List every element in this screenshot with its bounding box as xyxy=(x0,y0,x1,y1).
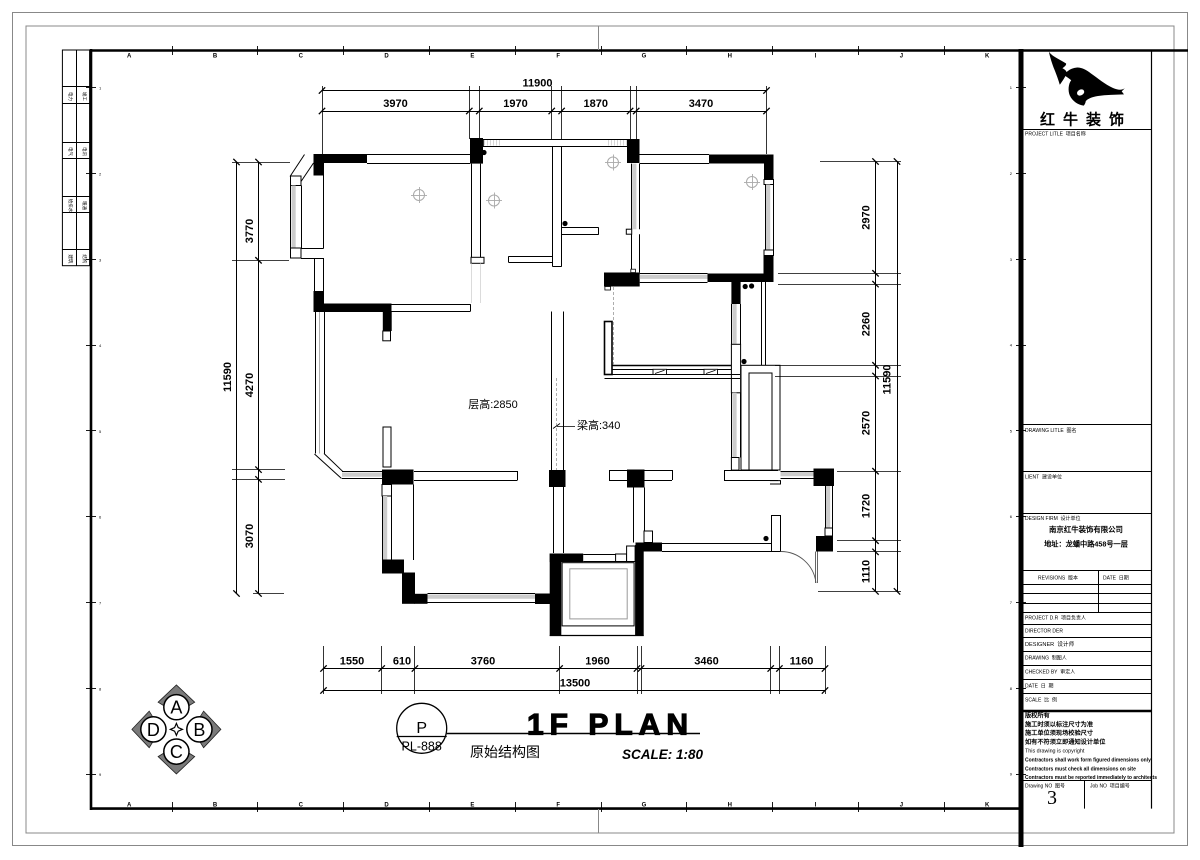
svg-text:B: B xyxy=(193,720,205,740)
svg-text:F: F xyxy=(556,803,560,809)
svg-text:DATE 日期: DATE 日期 xyxy=(1103,576,1129,582)
svg-text:G: G xyxy=(642,54,647,60)
svg-text:电力: 电力 xyxy=(67,92,74,101)
svg-text:13500: 13500 xyxy=(560,678,591,690)
svg-text:D: D xyxy=(147,720,160,740)
svg-text:版权所有: 版权所有 xyxy=(1024,712,1050,720)
svg-text:3770: 3770 xyxy=(244,219,256,243)
svg-text:F: F xyxy=(556,54,560,60)
svg-text:建筑: 建筑 xyxy=(67,254,74,263)
svg-text:DRAWING LITLE 图名: DRAWING LITLE 图名 xyxy=(1025,427,1077,434)
svg-text:This drawing is copyright: This drawing is copyright xyxy=(1025,749,1085,755)
svg-text:E: E xyxy=(470,803,474,809)
svg-text:1110: 1110 xyxy=(861,560,873,583)
svg-text:3460: 3460 xyxy=(694,656,718,668)
svg-text:C: C xyxy=(299,54,304,60)
svg-text:1160: 1160 xyxy=(790,656,814,668)
svg-text:DESIGNER 设计师: DESIGNER 设计师 xyxy=(1025,640,1075,648)
svg-text:CHECKED BY 审定人: CHECKED BY 审定人 xyxy=(1025,669,1075,676)
svg-text:11900: 11900 xyxy=(523,78,553,90)
svg-text:H: H xyxy=(728,54,732,60)
svg-text:11590: 11590 xyxy=(222,362,234,392)
svg-text:A: A xyxy=(170,698,182,718)
svg-text:梁高:340: 梁高:340 xyxy=(577,418,620,432)
svg-text:如有不符须立即通知设计单位: 如有不符须立即通知设计单位 xyxy=(1025,738,1106,746)
svg-text:B: B xyxy=(213,54,218,60)
svg-text:E: E xyxy=(470,54,474,60)
svg-text:K: K xyxy=(985,54,990,60)
svg-text:3070: 3070 xyxy=(244,524,256,548)
svg-text:C: C xyxy=(170,742,183,762)
svg-text:南京红牛装饰有限公司: 南京红牛装饰有限公司 xyxy=(1049,525,1123,534)
svg-text:11590: 11590 xyxy=(882,365,894,395)
svg-text:DRAWING 制图人: DRAWING 制图人 xyxy=(1025,655,1067,662)
svg-text:A: A xyxy=(127,54,132,60)
svg-text:DESIGN FIRM 设计单位: DESIGN FIRM 设计单位 xyxy=(1025,515,1081,522)
svg-text:1970: 1970 xyxy=(503,98,527,110)
svg-text:B: B xyxy=(213,803,218,809)
svg-text:2260: 2260 xyxy=(861,312,873,336)
svg-text:SCALE: 1:80: SCALE: 1:80 xyxy=(622,747,704,762)
svg-text:J: J xyxy=(900,54,903,60)
svg-text:1870: 1870 xyxy=(584,98,608,110)
svg-text:Job NO 项目编号: Job NO 项目编号 xyxy=(1090,783,1130,790)
svg-text:D: D xyxy=(384,54,389,60)
svg-text:J: J xyxy=(900,803,903,809)
svg-text:暖通: 暖通 xyxy=(81,201,88,210)
svg-text:地址：龙蟠中路458号一层: 地址：龙蟠中路458号一层 xyxy=(1044,540,1128,549)
svg-text:H: H xyxy=(728,803,732,809)
svg-text:2970: 2970 xyxy=(861,205,873,229)
svg-text:D: D xyxy=(384,803,389,809)
svg-text:施工时须以标注尺寸为准: 施工时须以标注尺寸为准 xyxy=(1025,720,1094,728)
svg-text:竣工: 竣工 xyxy=(81,92,88,101)
svg-text:PL-888: PL-888 xyxy=(402,740,442,754)
svg-text:4270: 4270 xyxy=(244,373,256,397)
svg-text:PROJECT LITLE 项目名称: PROJECT LITLE 项目名称 xyxy=(1025,131,1086,138)
svg-text:原始结构图: 原始结构图 xyxy=(470,744,540,760)
svg-text:LIENT 建设单位: LIENT 建设单位 xyxy=(1025,474,1062,481)
svg-text:1960: 1960 xyxy=(585,656,609,668)
svg-text:3970: 3970 xyxy=(383,98,407,110)
svg-text:Drawing NO 图号: Drawing NO 图号 xyxy=(1025,784,1065,790)
svg-text:电讯: 电讯 xyxy=(81,147,88,156)
svg-text:1550: 1550 xyxy=(340,656,364,668)
svg-text:1F PLAN: 1F PLAN xyxy=(527,709,694,742)
svg-text:2570: 2570 xyxy=(861,411,873,435)
svg-text:PROJECT D.R 项目负责人: PROJECT D.R 项目负责人 xyxy=(1025,615,1086,622)
svg-text:红牛装饰: 红牛装饰 xyxy=(1040,111,1132,129)
svg-text:电气: 电气 xyxy=(68,147,74,156)
svg-text:P: P xyxy=(416,720,427,737)
svg-text:1720: 1720 xyxy=(861,494,873,518)
svg-text:610: 610 xyxy=(393,656,411,668)
svg-text:Contractors must check all dim: Contractors must check all dimensions on… xyxy=(1025,766,1136,772)
svg-text:SCALE 比 例: SCALE 比 例 xyxy=(1025,697,1057,704)
svg-text:Contractors shall work form fi: Contractors shall work form figured dime… xyxy=(1025,758,1151,764)
svg-text:3470: 3470 xyxy=(689,98,713,110)
svg-text:DIRECTOR DER: DIRECTOR DER xyxy=(1025,629,1063,635)
svg-text:施工单位须现场校验尺寸: 施工单位须现场校验尺寸 xyxy=(1025,729,1094,737)
svg-text:3760: 3760 xyxy=(471,656,495,668)
svg-text:REVISIONS 版本: REVISIONS 版本 xyxy=(1038,575,1078,582)
svg-text:C: C xyxy=(299,803,304,809)
svg-text:3: 3 xyxy=(1047,787,1057,809)
svg-text:G: G xyxy=(642,803,647,809)
svg-text:给排水: 给排水 xyxy=(67,199,74,213)
svg-text:层高:2850: 层高:2850 xyxy=(468,397,518,411)
svg-text:DATE 日 期: DATE 日 期 xyxy=(1025,684,1054,690)
svg-text:A: A xyxy=(127,803,132,809)
svg-text:K: K xyxy=(985,803,990,809)
svg-text:Contractors must be reported i: Contractors must be reported immediately… xyxy=(1025,775,1157,781)
